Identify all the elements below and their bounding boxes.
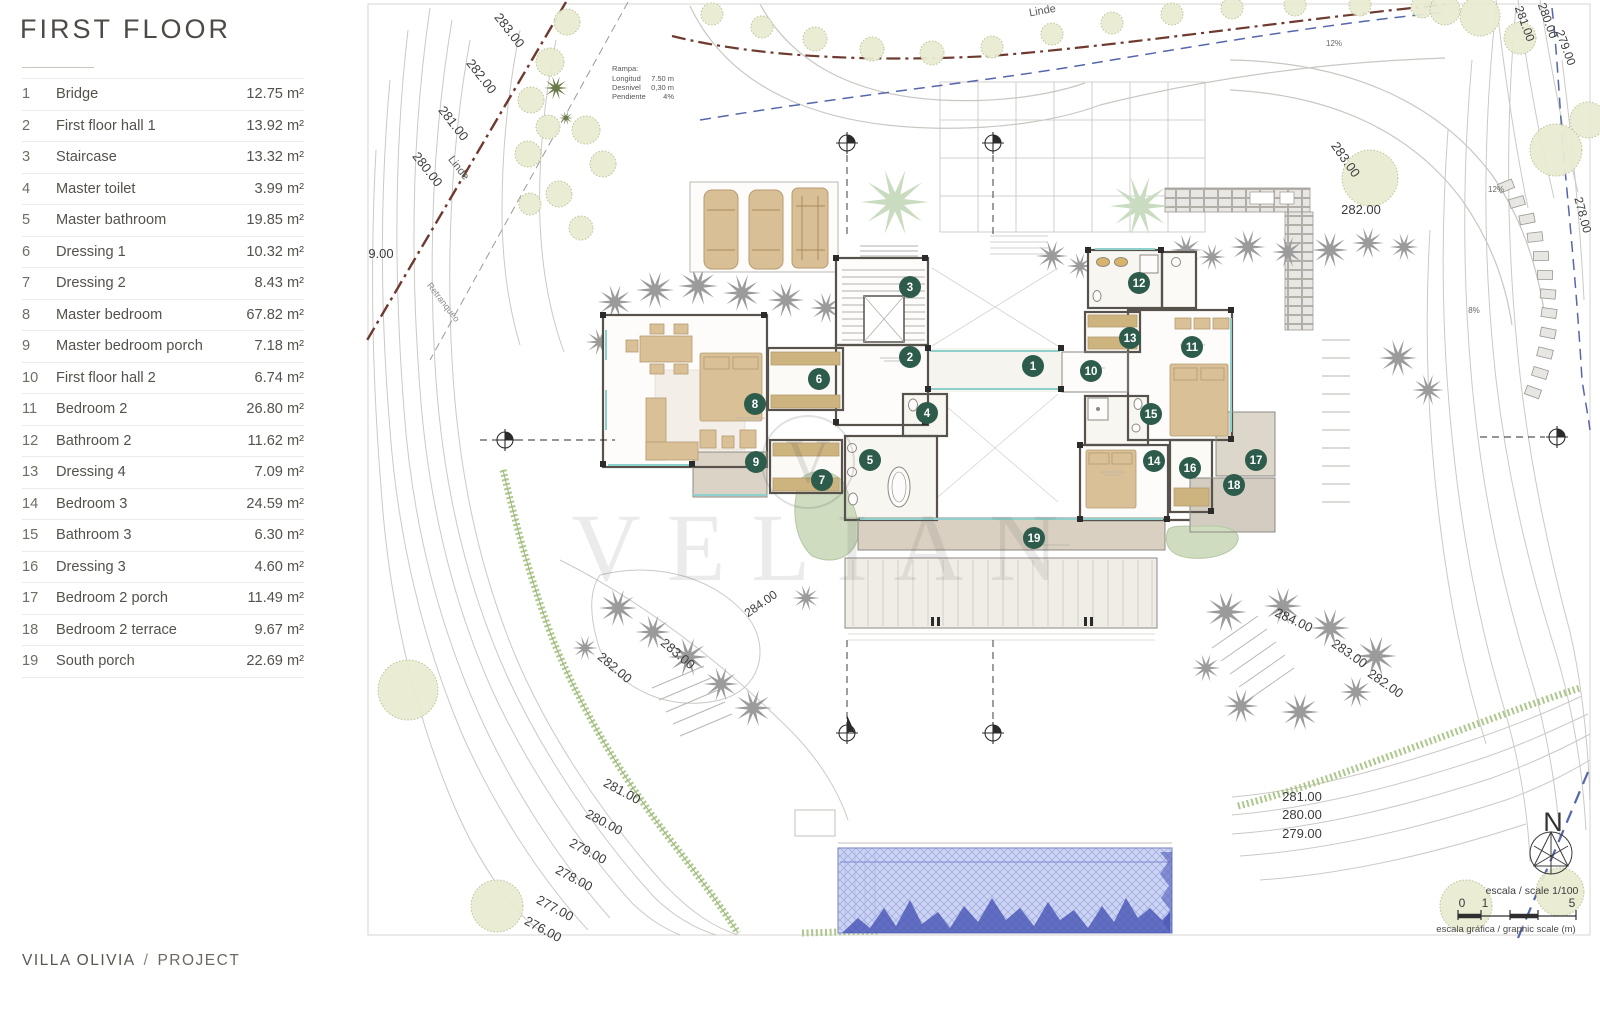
legend-room-area: 13.92 m² [246,118,304,134]
footer-project-name: VILLA OLIVIA [22,952,136,969]
room-marker-13: 13 [1119,327,1141,349]
legend-room-name: Bedroom 3 [56,496,246,512]
legend-number: 16 [22,559,56,575]
legend-room-name: Bedroom 2 [56,401,246,417]
room-marker-number: 16 [1184,463,1197,475]
site-label: 279.00 [567,835,609,867]
legend-room-name: Dressing 2 [56,275,255,291]
legend-room-area: 24.59 m² [246,496,304,512]
legend-row: 12Bathroom 211.62 m² [22,426,304,458]
legend-number: 6 [22,244,56,260]
legend-room-area: 67.82 m² [246,307,304,323]
svg-text:4%: 4% [663,92,674,101]
legend-number: 8 [22,307,56,323]
site-label: 280.00 [1282,807,1322,822]
legend-room-area: 8.43 m² [255,275,304,291]
room-marker-number: 5 [867,455,874,467]
ramp-note: Rampa: Longitud 7.50 m Desnivel 0,30 m P… [612,64,674,101]
legend-room-name: Bathroom 3 [56,527,255,543]
site-label: Retranqueo [425,281,462,324]
site-label: 284.00 [1273,605,1315,635]
legend-room-name: Dressing 1 [56,244,246,260]
site-label: 8% [1468,306,1480,315]
svg-text:0,30 m: 0,30 m [651,83,674,92]
legend-number: 3 [22,149,56,165]
legend-row: 5Master bathroom19.85 m² [22,205,304,237]
room-marker-number: 6 [816,374,822,386]
legend-room-name: Bridge [56,86,246,102]
room-marker-8: 8 [744,393,766,415]
footer-section: PROJECT [157,952,240,969]
legend-room-name: Staircase [56,149,246,165]
room-marker-9: 9 [745,451,767,473]
legend-row: 19South porch22.69 m² [22,646,304,678]
legend-row: 1Bridge12.75 m² [22,79,304,111]
legend-row: 8Master bedroom67.82 m² [22,300,304,332]
site-label: 282.00 [463,56,499,97]
footer: VILLA OLIVIA/PROJECT [22,952,240,970]
room-marker-number: 17 [1250,455,1263,467]
legend-number: 15 [22,527,56,543]
legend-room-area: 7.09 m² [255,464,304,480]
svg-text:0: 0 [1459,896,1466,910]
room-marker-number: 14 [1148,456,1161,468]
room-marker-5: 5 [859,449,881,471]
olive-trees [378,0,1600,932]
motor-court [940,82,1205,254]
room-marker-number: 10 [1085,366,1098,378]
legend-room-name: Bathroom 2 [56,433,247,449]
svg-text:5: 5 [1569,896,1576,910]
legend-room-area: 13.32 m² [246,149,304,165]
room-marker-16: 16 [1179,457,1201,479]
site-label: 282.00 [1341,202,1381,217]
room-marker-number: 15 [1145,409,1158,421]
legend-room-name: Master bedroom porch [56,338,255,354]
site-labels: 283.00282.00281.00280.00Linde9.00Retranq… [368,1,1594,945]
legend-room-area: 11.49 m² [247,590,304,606]
legend-room-area: 6.74 m² [255,370,304,386]
footer-separator: / [136,952,158,969]
legend-room-area: 6.30 m² [255,527,304,543]
site-label: Linde [1028,3,1057,19]
legend-number: 4 [22,181,56,197]
legend-room-name: Bedroom 2 terrace [56,622,255,638]
page-title: FIRST FLOOR [20,14,360,45]
room-marker-number: 9 [753,457,759,469]
room-marker-1: 1 [1022,355,1044,377]
svg-text:7.50 m: 7.50 m [651,74,674,83]
site-label: 12% [1488,185,1504,194]
car [704,188,828,269]
svg-text:Rampa:: Rampa: [612,64,638,73]
site-label: 9.00 [368,246,393,261]
svg-text:escala gráfica / graphic scale: escala gráfica / graphic scale (m) [1436,924,1575,935]
legend-number: 9 [22,338,56,354]
contour-lines [373,0,1590,935]
legend-room-area: 10.32 m² [246,244,304,260]
room-marker-11: 11 [1181,336,1203,358]
north-arrow: N [1530,807,1572,874]
legend-room-area: 4.60 m² [255,559,304,575]
room-marker-number: 18 [1228,480,1241,492]
site-label: 283.00 [491,10,527,51]
legend-panel: FIRST FLOOR 1Bridge12.75 m²2First floor … [0,0,360,678]
legend-number: 17 [22,590,56,606]
legend-row: 3Staircase13.32 m² [22,142,304,174]
legend-room-name: Master bedroom [56,307,246,323]
room-marker-3: 3 [899,276,921,298]
title-divider [22,67,94,68]
legend-number: 13 [22,464,56,480]
legend-number: 14 [22,496,56,512]
legend-row: 6Dressing 110.32 m² [22,237,304,269]
room-marker-number: 3 [907,282,913,294]
room-marker-18: 18 [1223,474,1245,496]
watermark-word: VELIAN [571,494,1084,601]
legend-row: 9Master bedroom porch7.18 m² [22,331,304,363]
room-marker-number: 2 [907,352,913,364]
legend-number: 2 [22,118,56,134]
legend-room-name: South porch [56,653,246,669]
legend-row: 13Dressing 47.09 m² [22,457,304,489]
legend-room-area: 7.18 m² [255,338,304,354]
legend-room-area: 12.75 m² [246,86,304,102]
stone-step-arc [1497,179,1557,399]
legend-row: 4Master toilet3.99 m² [22,174,304,206]
svg-text:Longitud: Longitud [612,74,641,83]
legend-row: 11Bedroom 226.80 m² [22,394,304,426]
room-marker-2: 2 [899,346,921,368]
legend-room-name: Dressing 3 [56,559,255,575]
room-marker-14: 14 [1143,450,1165,472]
legend-room-area: 3.99 m² [255,181,304,197]
site-label: 282.00 [1365,666,1406,701]
room-marker-7: 7 [811,469,833,491]
legend-room-area: 11.62 m² [247,433,304,449]
north-label: N [1543,807,1563,837]
room-marker-4: 4 [916,402,938,424]
room-marker-15: 15 [1140,403,1162,425]
legend-room-name: First floor hall 1 [56,118,246,134]
site-label: 281.00 [601,775,643,807]
room-marker-10: 10 [1080,360,1102,382]
site-label: 278.00 [553,862,595,894]
legend-row: 2First floor hall 113.92 m² [22,111,304,143]
svg-text:escala / scale 1/100: escala / scale 1/100 [1486,885,1579,897]
legend-row: 16Dressing 34.60 m² [22,552,304,584]
legend-list: 1Bridge12.75 m²2First floor hall 113.92 … [22,78,304,678]
site-label: 278.00 [1571,195,1594,234]
legend-number: 7 [22,275,56,291]
legend-row: 14Bedroom 324.59 m² [22,489,304,521]
legend-row: 7Dressing 28.43 m² [22,268,304,300]
legend-room-name: Master toilet [56,181,255,197]
room-marker-number: 13 [1124,333,1137,345]
room-marker-17: 17 [1245,449,1267,471]
room-marker-number: 11 [1186,342,1199,354]
legend-room-name: First floor hall 2 [56,370,255,386]
room-marker-number: 1 [1030,361,1037,373]
carport [690,182,838,272]
pool [795,810,1172,933]
legend-number: 5 [22,212,56,228]
legend-room-area: 9.67 m² [255,622,304,638]
svg-text:Pendiente: Pendiente [612,92,646,101]
room-marker-number: 12 [1133,278,1146,290]
site-label: 281.00 [1282,789,1322,804]
legend-number: 18 [22,622,56,638]
drawing-frame [368,4,1590,935]
room-marker-12: 12 [1128,272,1150,294]
site-label: 282.00 [595,649,635,686]
legend-row: 18Bedroom 2 terrace9.67 m² [22,615,304,647]
legend-number: 12 [22,433,56,449]
legend-room-area: 19.85 m² [246,212,304,228]
legend-number: 10 [22,370,56,386]
site-label: 281.00 [435,103,471,144]
room-marker-19: 19 [1023,527,1045,549]
room-marker-number: 8 [752,399,759,411]
room-marker-number: 4 [924,408,931,420]
svg-text:1: 1 [1482,896,1489,910]
legend-row: 10First floor hall 26.74 m² [22,363,304,395]
legend-number: 19 [22,653,56,669]
site-label: 279.00 [1282,826,1322,841]
legend-number: 1 [22,86,56,102]
legend-room-area: 26.80 m² [246,401,304,417]
site-label: 283.00 [1329,636,1370,671]
legend-room-name: Master bathroom [56,212,246,228]
room-marker-number: 19 [1028,533,1041,545]
room-marker-number: 7 [819,475,825,487]
legend-room-area: 22.69 m² [246,653,304,669]
legend-room-name: Dressing 4 [56,464,255,480]
site-label: 12% [1326,39,1342,48]
legend-row: 15Bathroom 36.30 m² [22,520,304,552]
legend-number: 11 [22,401,56,417]
legend-row: 17Bedroom 2 porch11.49 m² [22,583,304,615]
room-marker-6: 6 [808,368,830,390]
svg-text:Desnivel: Desnivel [612,83,641,92]
legend-room-name: Bedroom 2 porch [56,590,247,606]
